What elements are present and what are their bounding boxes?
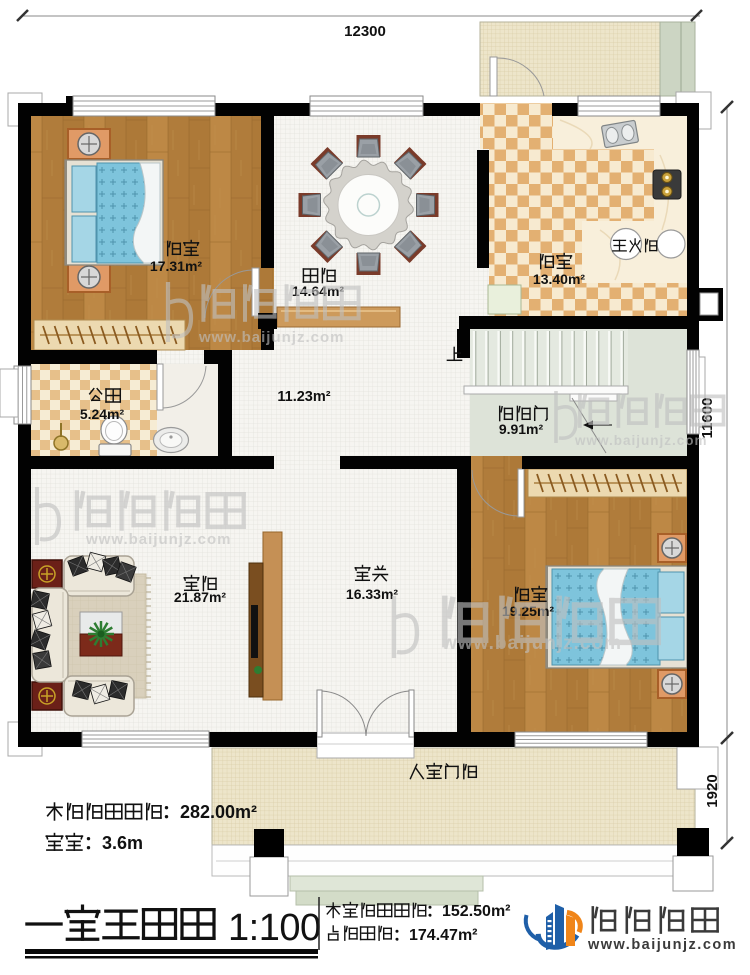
svg-text:：152.50m²: ：152.50m² bbox=[426, 903, 511, 920]
svg-text:21.87m²: 21.87m² bbox=[174, 589, 226, 605]
svg-text:：174.47m²: ：174.47m² bbox=[393, 927, 478, 944]
svg-text:1:100: 1:100 bbox=[228, 907, 321, 949]
svg-text:www.baijunjz.com: www.baijunjz.com bbox=[85, 531, 231, 548]
svg-text:9.91m²: 9.91m² bbox=[499, 421, 544, 437]
svg-text:17.31m²: 17.31m² bbox=[150, 258, 202, 274]
svg-text:1920: 1920 bbox=[704, 774, 721, 807]
svg-text:13.40m²: 13.40m² bbox=[533, 271, 585, 287]
svg-text:www.baijunjz.com: www.baijunjz.com bbox=[574, 433, 708, 448]
svg-text:12300: 12300 bbox=[344, 23, 386, 40]
svg-text:www.baijunjz.com: www.baijunjz.com bbox=[587, 937, 737, 953]
svg-text:：282.00m²: ：282.00m² bbox=[162, 802, 257, 822]
svg-text:5.24m²: 5.24m² bbox=[80, 406, 125, 422]
svg-text:11.23m²: 11.23m² bbox=[277, 389, 330, 405]
svg-text:www.baijunjz.com: www.baijunjz.com bbox=[441, 633, 622, 654]
svg-text:www.baijunjz.com: www.baijunjz.com bbox=[198, 329, 344, 346]
svg-text:：3.6m: ：3.6m bbox=[84, 833, 143, 853]
svg-text:16.33m²: 16.33m² bbox=[346, 586, 398, 602]
